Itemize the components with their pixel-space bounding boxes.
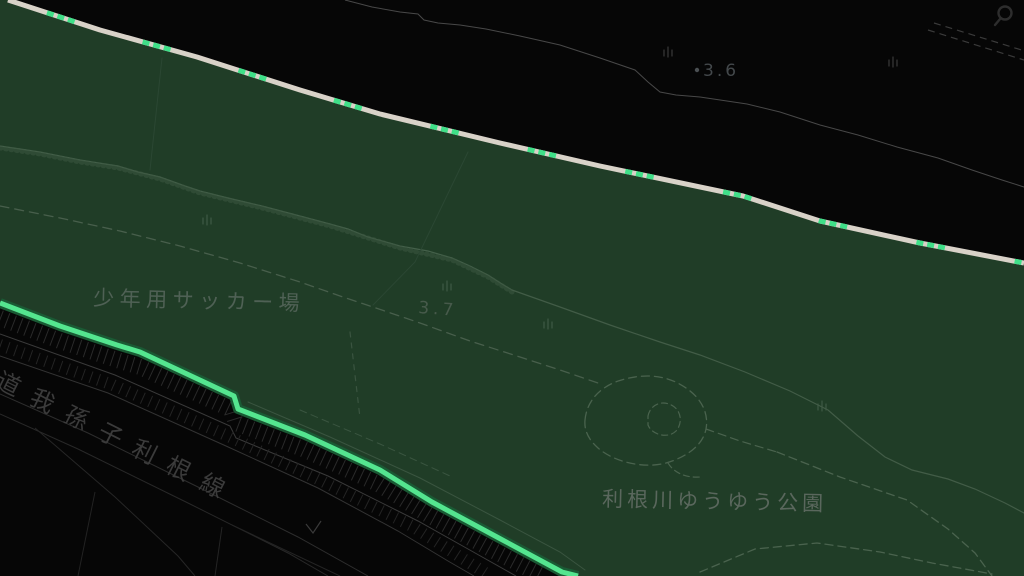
map-layers: 少年用サッカー場 利根川ゆうゆう公園 道我孫子利根線 3.6 3.7 bbox=[0, 0, 1024, 576]
map-canvas[interactable]: 少年用サッカー場 利根川ゆうゆう公園 道我孫子利根線 3.6 3.7 bbox=[0, 0, 1024, 576]
park-name-label: 利根川ゆうゆう公園 bbox=[602, 487, 827, 516]
spot-elevation-3-7: 3.7 bbox=[418, 298, 458, 321]
spot-elevation-3-6: 3.6 bbox=[703, 61, 739, 81]
spot-elevation-marker bbox=[695, 68, 699, 72]
